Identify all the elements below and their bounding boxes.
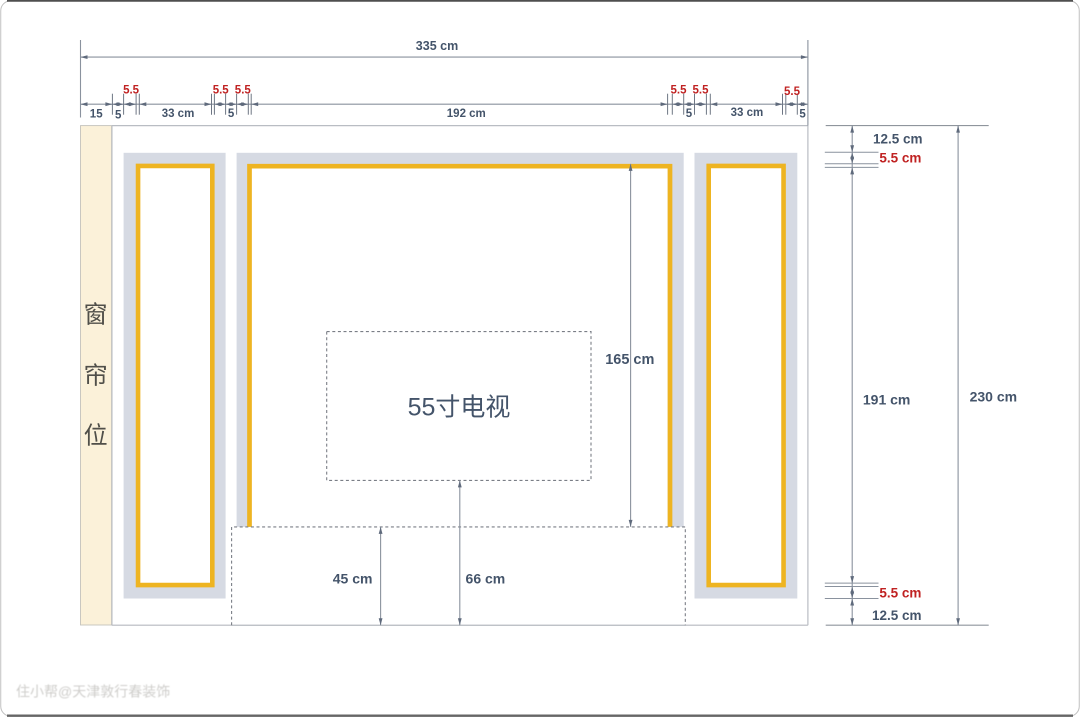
- svg-text:33 cm: 33 cm: [162, 108, 195, 120]
- svg-text:5.5 cm: 5.5 cm: [879, 585, 921, 600]
- svg-text:15: 15: [90, 109, 103, 121]
- svg-text:5.5: 5.5: [671, 84, 688, 96]
- svg-text:住小帮@天津敦行春装饰: 住小帮@天津敦行春装饰: [16, 684, 170, 700]
- svg-text:45 cm: 45 cm: [333, 570, 373, 586]
- svg-text:帘: 帘: [84, 363, 108, 390]
- svg-text:12.5 cm: 12.5 cm: [872, 608, 922, 623]
- svg-text:335 cm: 335 cm: [416, 39, 458, 53]
- svg-text:165 cm: 165 cm: [605, 352, 654, 368]
- svg-text:5: 5: [686, 108, 693, 120]
- svg-text:5: 5: [115, 110, 122, 122]
- svg-text:5.5 cm: 5.5 cm: [879, 151, 921, 166]
- svg-text:5.5: 5.5: [213, 85, 230, 97]
- svg-text:33 cm: 33 cm: [731, 107, 764, 119]
- svg-text:5.5: 5.5: [784, 86, 801, 98]
- svg-text:230 cm: 230 cm: [970, 389, 1017, 405]
- svg-text:191 cm: 191 cm: [863, 392, 910, 408]
- svg-text:55寸电视: 55寸电视: [408, 394, 511, 422]
- svg-text:12.5 cm: 12.5 cm: [873, 131, 923, 146]
- svg-text:5.5: 5.5: [123, 85, 140, 97]
- svg-text:5.5: 5.5: [235, 85, 252, 97]
- svg-text:66 cm: 66 cm: [466, 570, 506, 586]
- svg-text:位: 位: [84, 423, 108, 450]
- svg-text:5: 5: [799, 108, 806, 120]
- svg-text:192 cm: 192 cm: [447, 108, 486, 120]
- svg-text:5.5: 5.5: [693, 84, 710, 96]
- svg-text:窗: 窗: [84, 302, 108, 329]
- svg-text:5: 5: [228, 108, 235, 120]
